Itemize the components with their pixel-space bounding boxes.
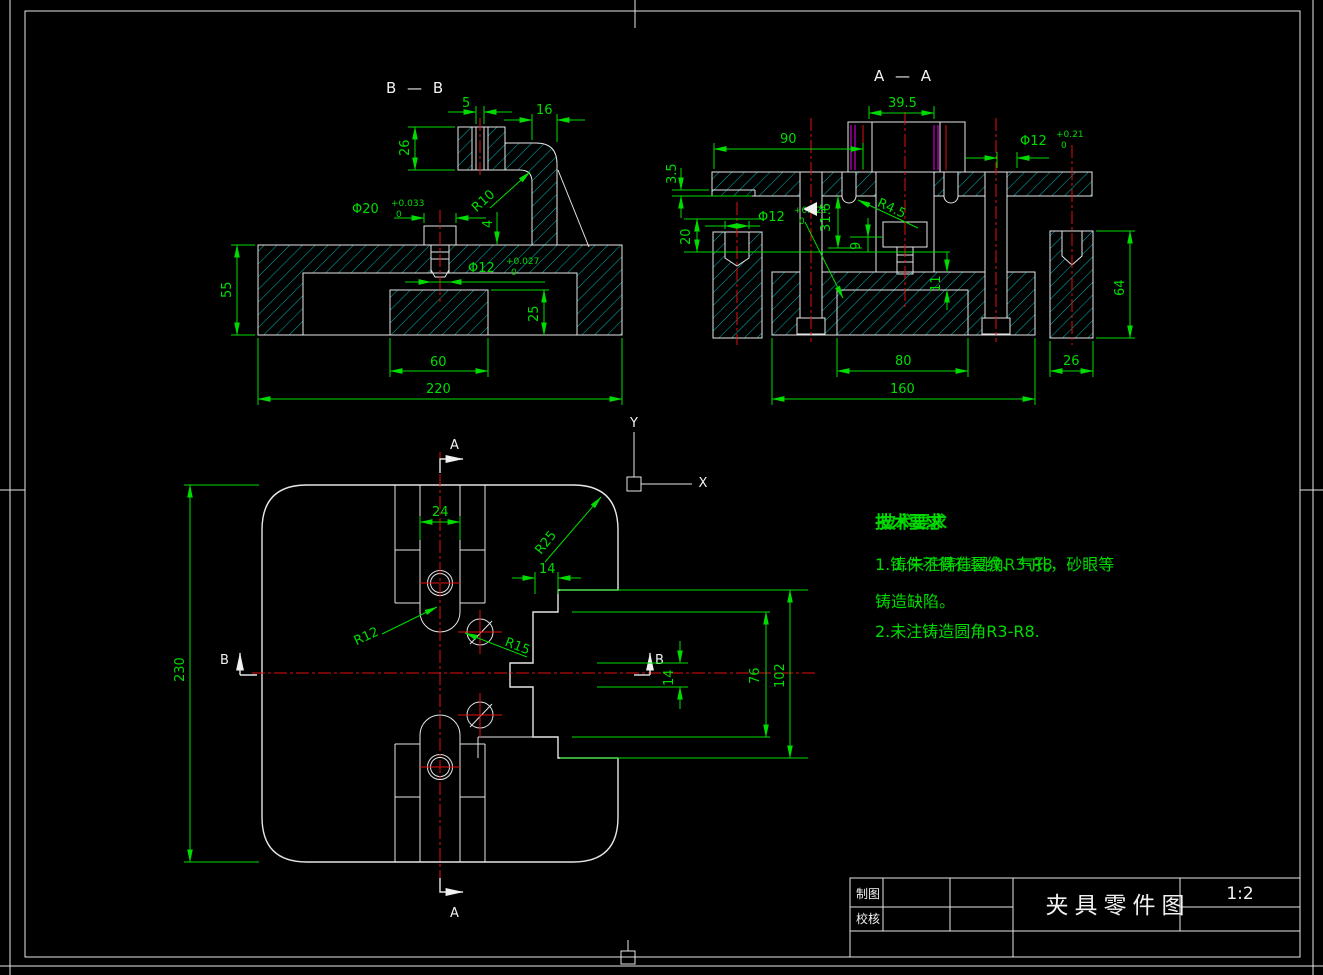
svg-text:230: 230 [173,657,188,682]
section-view-bb: B — B 5 [220,79,622,405]
svg-text:60: 60 [430,355,447,370]
technical-requirements: 技术要求 技术要求 1.铸件不得有裂纹、气孔，砂眼等 1.未注铸造圆角R3-R8… [875,512,1114,641]
svg-text:55: 55 [220,281,235,298]
svg-text:0: 0 [799,217,805,227]
svg-text:64: 64 [1113,279,1128,296]
svg-text:76: 76 [748,667,763,684]
svg-text:Φ20: Φ20 [352,202,379,217]
svg-text:R10: R10 [469,187,498,215]
tech-req-line1-ghost: 1.未注铸造圆角R3-R8 [893,555,1053,574]
drawing-title: 夹具零件图 [1046,893,1191,919]
marker-b-right: B [655,653,664,668]
svg-text:R12: R12 [352,625,382,649]
cad-drawing-canvas[interactable]: Y X B — B 5 [0,0,1323,975]
svg-text:14: 14 [539,562,556,577]
bb-clamp-arm [505,143,557,245]
svg-text:80: 80 [895,354,912,369]
svg-text:11: 11 [929,275,944,292]
svg-text:90: 90 [780,132,797,147]
svg-text:25: 25 [527,305,542,322]
svg-text:+0.027: +0.027 [506,257,539,267]
tech-req-line3: 2.未注铸造圆角R3-R8. [875,622,1040,641]
section-view-aa: A — A [665,67,1135,405]
svg-text:3.5: 3.5 [665,163,680,184]
svg-text:0: 0 [396,210,402,220]
svg-text:102: 102 [773,663,788,688]
aa-notch-right [944,196,958,203]
marker-a-top: A [450,438,459,453]
aa-top-boss [848,122,965,172]
aa-notch-left [842,196,856,203]
svg-text:Φ12: Φ12 [468,261,495,276]
ucs-x-label: X [699,476,708,491]
svg-text:24: 24 [432,505,449,520]
svg-text:4: 4 [481,220,496,228]
svg-text:160: 160 [890,382,915,397]
marker-b-left: B [220,653,229,668]
svg-text:16: 16 [536,103,553,118]
section-bb-title: B — B [386,79,446,97]
centering-marks [0,0,1323,964]
tech-req-title-ghost: 技术要求 [879,512,947,533]
marker-a-bottom: A [450,906,459,921]
svg-text:R15: R15 [503,635,532,658]
section-aa-title: A — A [874,67,934,85]
svg-text:39.5: 39.5 [888,96,917,111]
svg-text:+0.21: +0.21 [1056,130,1084,140]
svg-text:Φ12: Φ12 [758,210,785,225]
drafter-label: 制图 [856,887,880,901]
drawing-frame [0,0,1323,975]
tech-req-line2: 铸造缺陷。 [875,592,955,611]
svg-text:R25: R25 [532,528,560,557]
svg-text:31.6: 31.6 [819,203,834,232]
drawing-scale: 1:2 [1226,884,1253,904]
plan-view: A A B B 24 R25 [173,438,815,921]
checker-label: 校核 [856,911,880,926]
cad-drawing: Y X B — B 5 [0,0,1323,975]
svg-text:0: 0 [511,268,517,278]
svg-text:R4.5: R4.5 [875,196,908,222]
ucs-y-label: Y [629,416,638,431]
title-block: 制图 校核 夹具零件图 1:2 [850,878,1300,957]
svg-text:220: 220 [426,382,451,397]
svg-text:9: 9 [849,242,864,250]
ucs-icon: Y X [627,416,708,491]
svg-text:0: 0 [1061,141,1067,151]
svg-text:20: 20 [679,228,694,245]
svg-text:14: 14 [662,669,677,686]
svg-text:+0.033: +0.033 [391,199,424,209]
bb-center-block [390,290,488,335]
svg-text:26: 26 [1063,354,1080,369]
svg-text:5: 5 [462,96,470,111]
svg-text:Φ12: Φ12 [1020,134,1047,149]
svg-text:26: 26 [398,139,413,156]
